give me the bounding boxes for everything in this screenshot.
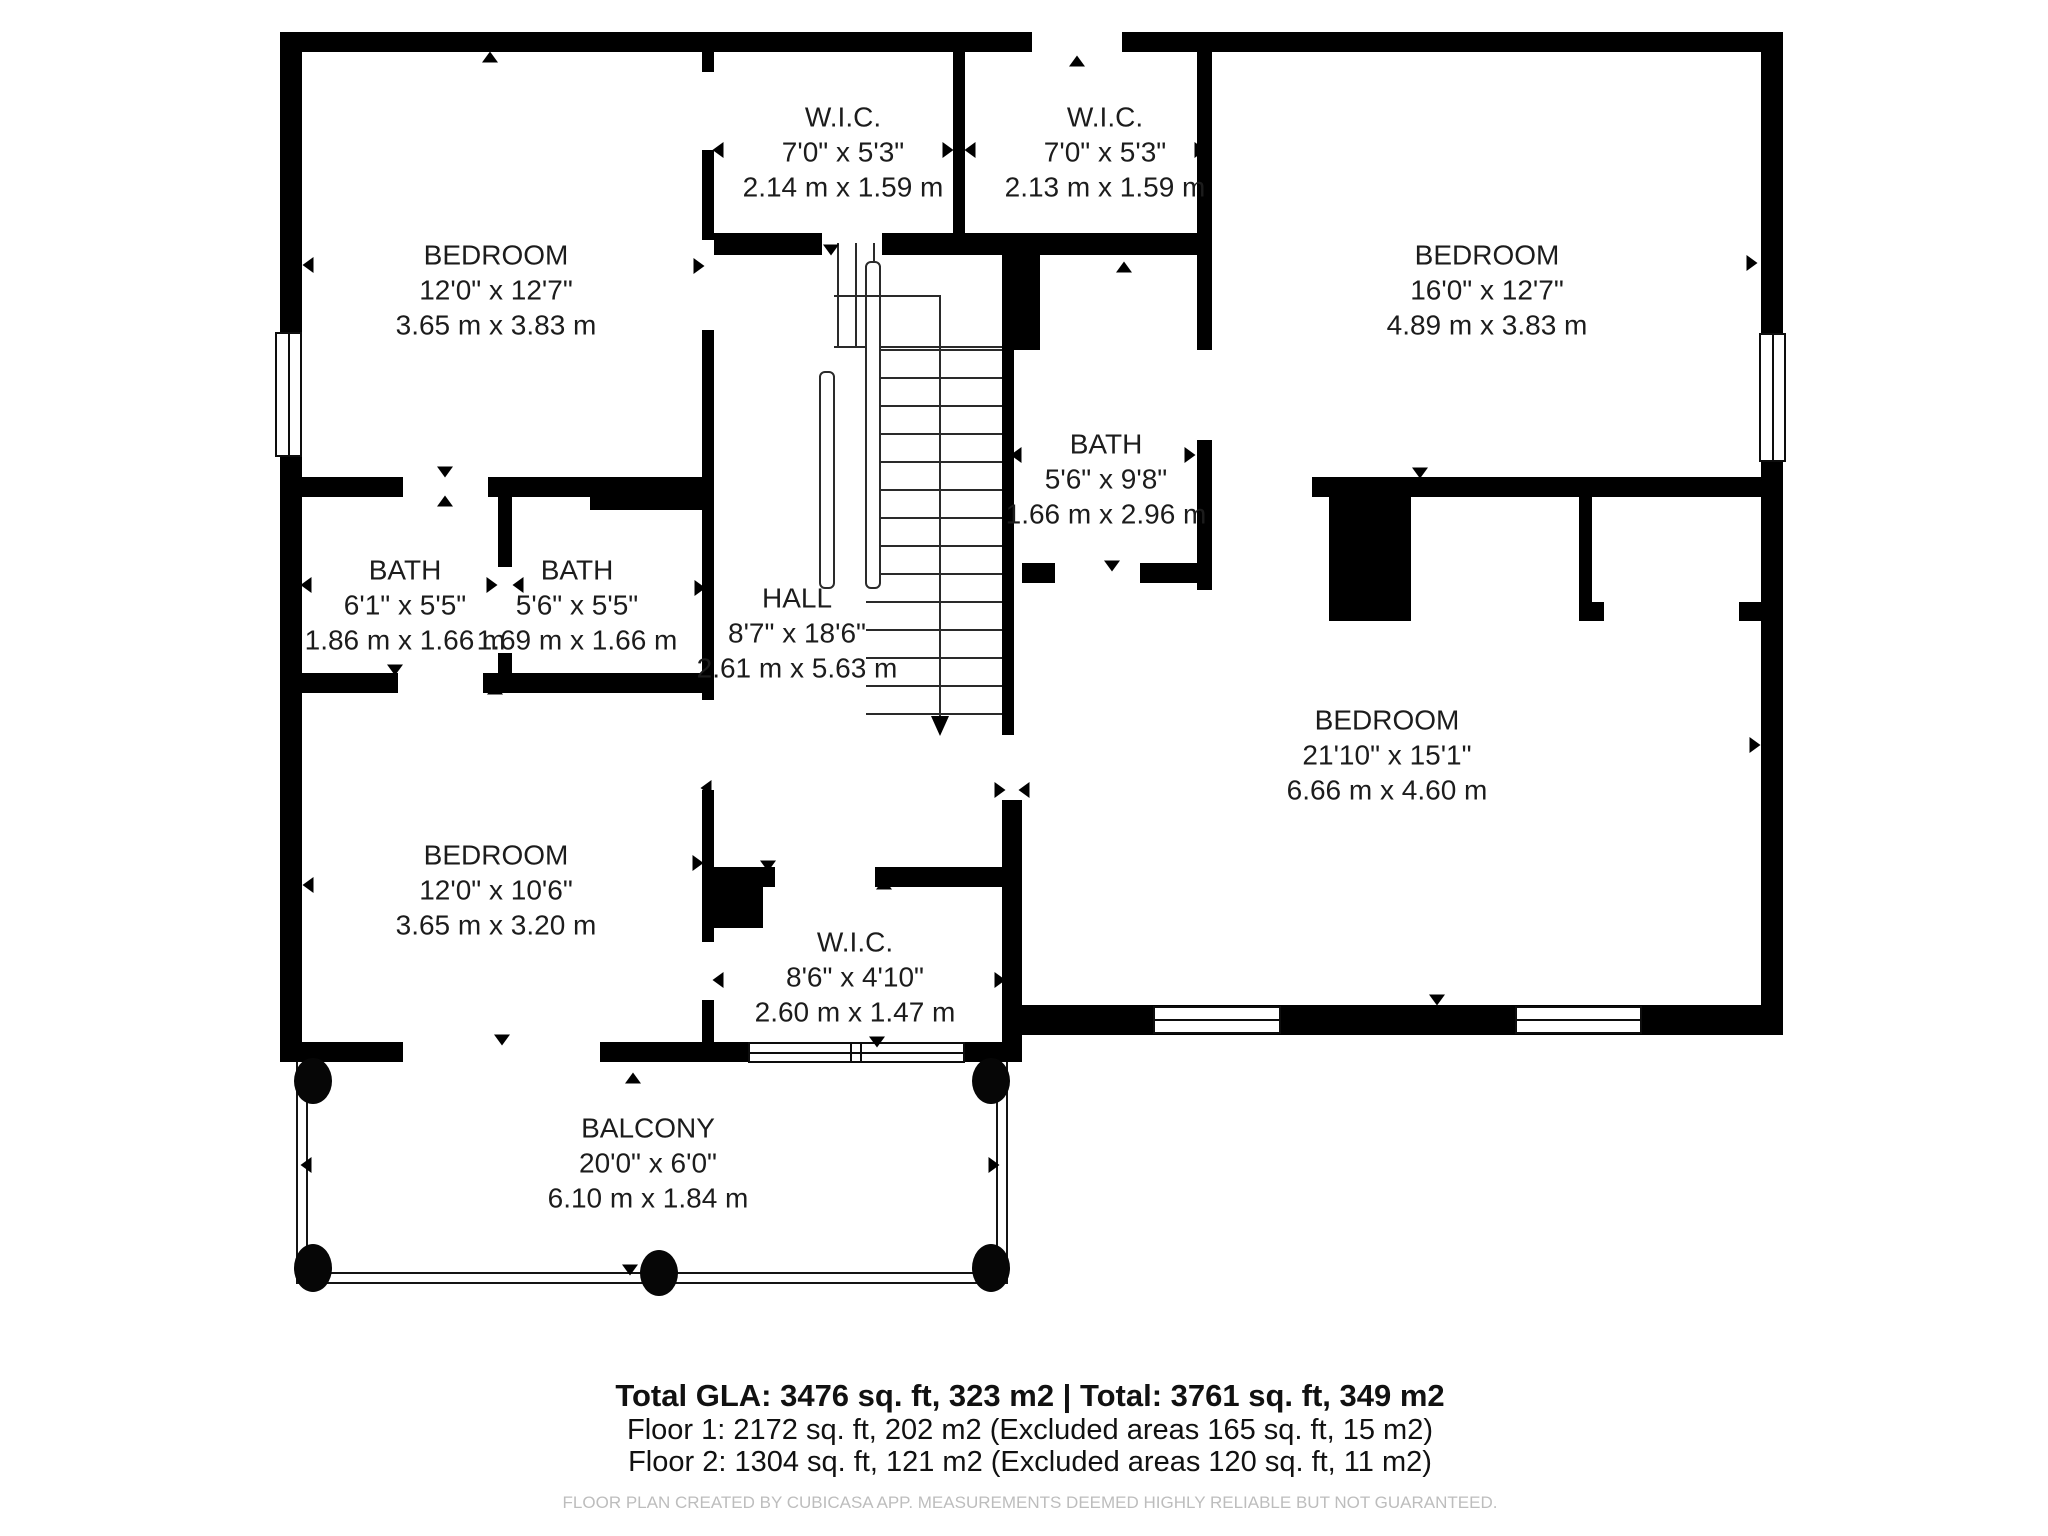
- room-label-bath-middle-left: BATH 5'6" x 5'5" 1.69 m x 1.66 m: [477, 553, 678, 658]
- wall: [714, 233, 822, 255]
- window-pane-line: [1517, 1019, 1640, 1021]
- room-label-hall: HALL 8'7" x 18'6" 2.61 m x 5.63 m: [697, 581, 898, 686]
- stair-direction-arrow: [931, 716, 949, 736]
- marker-arrow: [301, 1157, 312, 1173]
- window-pane-line: [288, 334, 290, 455]
- room-size-imperial: 7'0" x 5'3": [743, 135, 944, 170]
- marker-arrow: [1374, 496, 1390, 507]
- wall-block: [702, 928, 714, 942]
- room-name: W.I.C.: [755, 925, 956, 960]
- room-name: BEDROOM: [1387, 238, 1588, 273]
- marker-arrow: [625, 1073, 641, 1084]
- wall: [953, 52, 965, 235]
- wall: [1761, 52, 1783, 1005]
- room-size-metric: 6.66 m x 4.60 m: [1287, 773, 1488, 808]
- marker-arrow: [823, 245, 839, 256]
- window-pane-line: [1155, 1019, 1279, 1021]
- marker-arrow: [387, 665, 403, 676]
- marker-arrow: [713, 972, 724, 988]
- room-size-imperial: 7'0" x 5'3": [1005, 135, 1206, 170]
- balcony-column: [294, 1244, 332, 1292]
- wall: [1002, 800, 1022, 1062]
- room-label-bath-left: BATH 6'1" x 5'5" 1.86 m x 1.66 m: [305, 553, 506, 658]
- room-size-metric: 2.14 m x 1.59 m: [743, 170, 944, 205]
- sliding-door-divider: [850, 1044, 852, 1061]
- room-name: BATH: [1006, 427, 1207, 462]
- marker-arrow: [622, 1265, 638, 1276]
- sliding-door-divider: [860, 1044, 862, 1061]
- room-name: BATH: [305, 553, 506, 588]
- window: [1515, 1006, 1642, 1034]
- marker-arrow: [989, 1157, 1000, 1173]
- wall: [875, 867, 1022, 887]
- wall: [280, 1042, 403, 1062]
- room-label-bedroom-bottom-left: BEDROOM 12'0" x 10'6" 3.65 m x 3.20 m: [396, 838, 597, 943]
- marker-arrow: [876, 879, 892, 890]
- room-label-bedroom-top-left: BEDROOM 12'0" x 12'7" 3.65 m x 3.83 m: [396, 238, 597, 343]
- balcony-column: [640, 1250, 678, 1296]
- wall: [702, 52, 714, 72]
- marker-arrow: [1747, 255, 1758, 271]
- sliding-door-line: [750, 1052, 963, 1054]
- room-size-imperial: 8'7" x 18'6": [697, 616, 898, 651]
- marker-arrow: [303, 877, 314, 893]
- window-pane-line: [1772, 335, 1774, 460]
- marker-arrow: [494, 1035, 510, 1046]
- marker-arrow: [1019, 782, 1030, 798]
- room-label-bath-right: BATH 5'6" x 9'8" 1.66 m x 2.96 m: [1006, 427, 1207, 532]
- wall: [1312, 477, 1763, 497]
- room-label-wic-bottom: W.I.C. 8'6" x 4'10" 2.60 m x 1.47 m: [755, 925, 956, 1030]
- wall: [1140, 563, 1197, 583]
- room-size-metric: 1.69 m x 1.66 m: [477, 623, 678, 658]
- wall: [702, 1000, 714, 1062]
- wall: [1122, 32, 1783, 52]
- wall: [280, 52, 302, 1062]
- wall: [1579, 602, 1604, 621]
- room-name: BALCONY: [548, 1111, 749, 1146]
- wall: [483, 673, 714, 693]
- wall: [702, 150, 714, 240]
- room-size-metric: 1.86 m x 1.66 m: [305, 623, 506, 658]
- floor1-area-text: Floor 1: 2172 sq. ft, 202 m2 (Excluded a…: [615, 1414, 1444, 1446]
- room-size-metric: 2.61 m x 5.63 m: [697, 651, 898, 686]
- wall: [1005, 1005, 1783, 1035]
- marker-arrow: [693, 855, 704, 871]
- wall-block: [702, 878, 763, 928]
- wall: [280, 32, 1032, 52]
- marker-arrow: [303, 257, 314, 273]
- marker-arrow: [437, 467, 453, 478]
- wall: [1739, 602, 1763, 621]
- room-size-metric: 2.60 m x 1.47 m: [755, 995, 956, 1030]
- chimney-block: [1329, 497, 1411, 621]
- disclaimer-text: FLOOR PLAN CREATED BY CUBICASA APP. MEAS…: [563, 1493, 1498, 1513]
- wall: [1022, 563, 1055, 583]
- marker-arrow: [1069, 56, 1085, 67]
- window: [1153, 1006, 1281, 1034]
- marker-arrow: [965, 142, 976, 158]
- total-gla-text: Total GLA: 3476 sq. ft, 323 m2 | Total: …: [615, 1378, 1444, 1414]
- room-size-imperial: 12'0" x 12'7": [396, 273, 597, 308]
- room-size-metric: 3.65 m x 3.83 m: [396, 308, 597, 343]
- wall-block: [1012, 242, 1040, 350]
- wall: [590, 477, 714, 510]
- marker-arrow: [1429, 995, 1445, 1006]
- room-name: BEDROOM: [396, 238, 597, 273]
- room-label-bedroom-right: BEDROOM 21'10" x 15'1" 6.66 m x 4.60 m: [1287, 703, 1488, 808]
- marker-arrow: [943, 142, 954, 158]
- window: [275, 332, 302, 457]
- room-name: BEDROOM: [396, 838, 597, 873]
- area-summary: Total GLA: 3476 sq. ft, 323 m2 | Total: …: [615, 1378, 1444, 1478]
- room-name: BATH: [477, 553, 678, 588]
- room-label-wic-top-right: W.I.C. 7'0" x 5'3" 2.13 m x 1.59 m: [1005, 100, 1206, 205]
- room-size-metric: 2.13 m x 1.59 m: [1005, 170, 1206, 205]
- room-name: W.I.C.: [1005, 100, 1206, 135]
- room-size-imperial: 12'0" x 10'6": [396, 873, 597, 908]
- room-size-imperial: 20'0" x 6'0": [548, 1146, 749, 1181]
- marker-arrow: [869, 1037, 885, 1048]
- room-size-metric: 6.10 m x 1.84 m: [548, 1181, 749, 1216]
- marker-arrow: [1412, 468, 1428, 479]
- room-size-imperial: 5'6" x 5'5": [477, 588, 678, 623]
- room-size-imperial: 21'10" x 15'1": [1287, 738, 1488, 773]
- marker-arrow: [1750, 737, 1761, 753]
- marker-arrow: [995, 972, 1006, 988]
- marker-arrow: [701, 780, 712, 796]
- marker-arrow: [1116, 262, 1132, 273]
- wall: [300, 477, 403, 497]
- room-name: HALL: [697, 581, 898, 616]
- room-size-imperial: 8'6" x 4'10": [755, 960, 956, 995]
- marker-arrow: [1104, 561, 1120, 572]
- room-size-metric: 3.65 m x 3.20 m: [396, 908, 597, 943]
- room-size-metric: 4.89 m x 3.83 m: [1387, 308, 1588, 343]
- balcony-column: [972, 1058, 1010, 1104]
- wall: [300, 673, 398, 693]
- marker-arrow: [694, 258, 705, 274]
- window: [1759, 333, 1786, 462]
- marker-arrow: [487, 684, 503, 695]
- floor2-area-text: Floor 2: 1304 sq. ft, 121 m2 (Excluded a…: [615, 1446, 1444, 1478]
- room-name: W.I.C.: [743, 100, 944, 135]
- room-size-imperial: 16'0" x 12'7": [1387, 273, 1588, 308]
- sliding-door: [748, 1042, 965, 1063]
- marker-arrow: [437, 496, 453, 507]
- balcony-column: [294, 1058, 332, 1104]
- room-label-balcony: BALCONY 20'0" x 6'0" 6.10 m x 1.84 m: [548, 1111, 749, 1216]
- marker-arrow: [995, 782, 1006, 798]
- room-label-bedroom-top-right: BEDROOM 16'0" x 12'7" 4.89 m x 3.83 m: [1387, 238, 1588, 343]
- marker-arrow: [482, 52, 498, 63]
- wall: [702, 790, 714, 878]
- marker-arrow: [713, 142, 724, 158]
- floor-plan: W.I.C. 7'0" x 5'3" 2.14 m x 1.59 m W.I.C…: [0, 0, 2048, 1536]
- room-size-imperial: 5'6" x 9'8": [1006, 462, 1207, 497]
- marker-arrow: [760, 861, 776, 872]
- balcony-column: [972, 1244, 1010, 1292]
- room-label-wic-top-left: W.I.C. 7'0" x 5'3" 2.14 m x 1.59 m: [743, 100, 944, 205]
- room-size-imperial: 6'1" x 5'5": [305, 588, 506, 623]
- room-size-metric: 1.66 m x 2.96 m: [1006, 497, 1207, 532]
- room-name: BEDROOM: [1287, 703, 1488, 738]
